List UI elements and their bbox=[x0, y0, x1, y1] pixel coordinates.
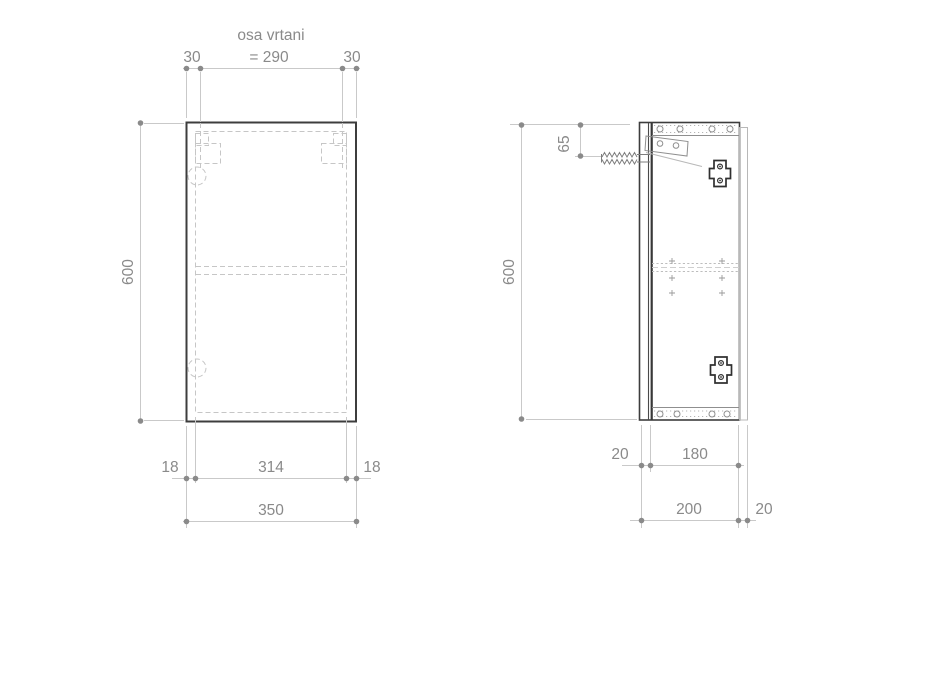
front-inset-right-label: 18 bbox=[363, 459, 380, 476]
drawing-canvas: osa vrtani = 290 30 30 600 18 314 18 350 bbox=[0, 0, 928, 686]
side-view bbox=[602, 123, 748, 421]
front-view bbox=[187, 123, 357, 422]
drill-offset-left-label: 30 bbox=[183, 49, 201, 66]
technical-drawing-page: osa vrtani = 290 30 30 600 18 314 18 350 bbox=[0, 0, 928, 686]
side-back-offset-label: 20 bbox=[755, 501, 773, 518]
front-total-width-label: 350 bbox=[258, 502, 284, 519]
front-top-dimension-lines bbox=[183, 69, 360, 123]
drill-offset-right-label: 30 bbox=[343, 49, 361, 66]
front-height-dimension-lines bbox=[141, 123, 185, 421]
side-total-depth-label: 200 bbox=[676, 501, 702, 518]
front-height-label: 600 bbox=[120, 259, 137, 285]
side-height-label: 600 bbox=[501, 259, 518, 285]
side-height-dimension-lines bbox=[510, 125, 637, 420]
side-inner-depth-label: 180 bbox=[682, 446, 708, 463]
side-wall-rail bbox=[740, 128, 748, 421]
front-inner-width-label: 314 bbox=[258, 459, 284, 476]
front-inset-left-label: 18 bbox=[161, 459, 178, 476]
side-height-dimension-dots bbox=[519, 122, 584, 422]
side-hanger-offset-label: 65 bbox=[556, 135, 573, 152]
front-cabinet-outline bbox=[187, 123, 357, 422]
drill-axis-value-label: = 290 bbox=[249, 49, 289, 66]
side-door-thickness-label: 20 bbox=[611, 446, 629, 463]
drill-axis-title-label: osa vrtani bbox=[237, 27, 304, 44]
